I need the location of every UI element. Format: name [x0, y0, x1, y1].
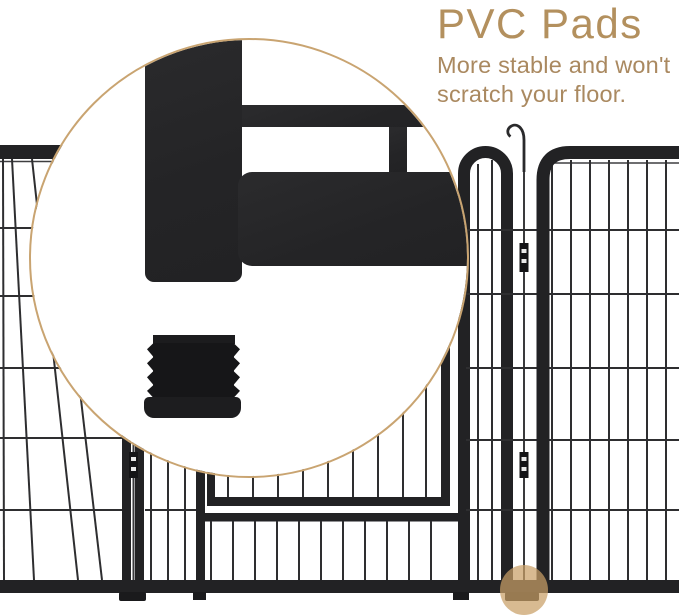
fence-foot [193, 592, 206, 600]
fence-wire [12, 159, 34, 580]
magnified-top-rail [242, 105, 467, 127]
hinge-sleeve [129, 452, 138, 478]
magnified-frame-post [145, 40, 242, 282]
hinge-sleeve-gap [131, 457, 136, 461]
pvc-pad-rib [147, 371, 240, 385]
callout-text-block: PVC Pads More stable and won't scratch y… [437, 2, 670, 108]
hinge-sleeve [520, 243, 529, 272]
fence-bottom [0, 580, 679, 601]
fence-wire [3, 159, 4, 580]
hinge-sleeve-gap [522, 259, 527, 263]
callout-subtitle-line1: More stable and won't [437, 51, 670, 80]
hinge-sleeve-gap [522, 467, 527, 471]
door-mid-bar [204, 513, 462, 522]
door-inner-frame-bottom [207, 497, 450, 506]
bottom-bar [0, 580, 679, 593]
hinge-sleeve [520, 452, 529, 478]
fence-foot [453, 592, 469, 600]
pad-location-highlight-dot [500, 565, 548, 615]
arch-frame [464, 152, 507, 592]
right-panel-frame [543, 153, 679, 593]
callout-subtitle: More stable and won't scratch your floor… [437, 51, 670, 108]
magnified-frame-beam [238, 172, 467, 266]
pvc-pad-rib [147, 357, 240, 371]
pvc-pad-rib [147, 343, 240, 357]
hinge-sleeve-gap [522, 249, 527, 253]
fence-right-panel [466, 153, 679, 593]
callout-title: PVC Pads [437, 2, 670, 46]
hinge-sleeve-gap [522, 457, 527, 461]
zoom-callout-window [31, 40, 467, 476]
magnified-rail-connector [389, 127, 407, 173]
pvc-pad-top [153, 335, 235, 344]
fence-arch-section [464, 152, 507, 592]
product-feature-image: PVC Pads More stable and won't scratch y… [0, 0, 679, 616]
fence-foot [119, 592, 146, 601]
pvc-pad-base [144, 397, 241, 418]
callout-subtitle-line2: scratch your floor. [437, 80, 670, 109]
hinge-sleeve-gap [131, 467, 136, 471]
